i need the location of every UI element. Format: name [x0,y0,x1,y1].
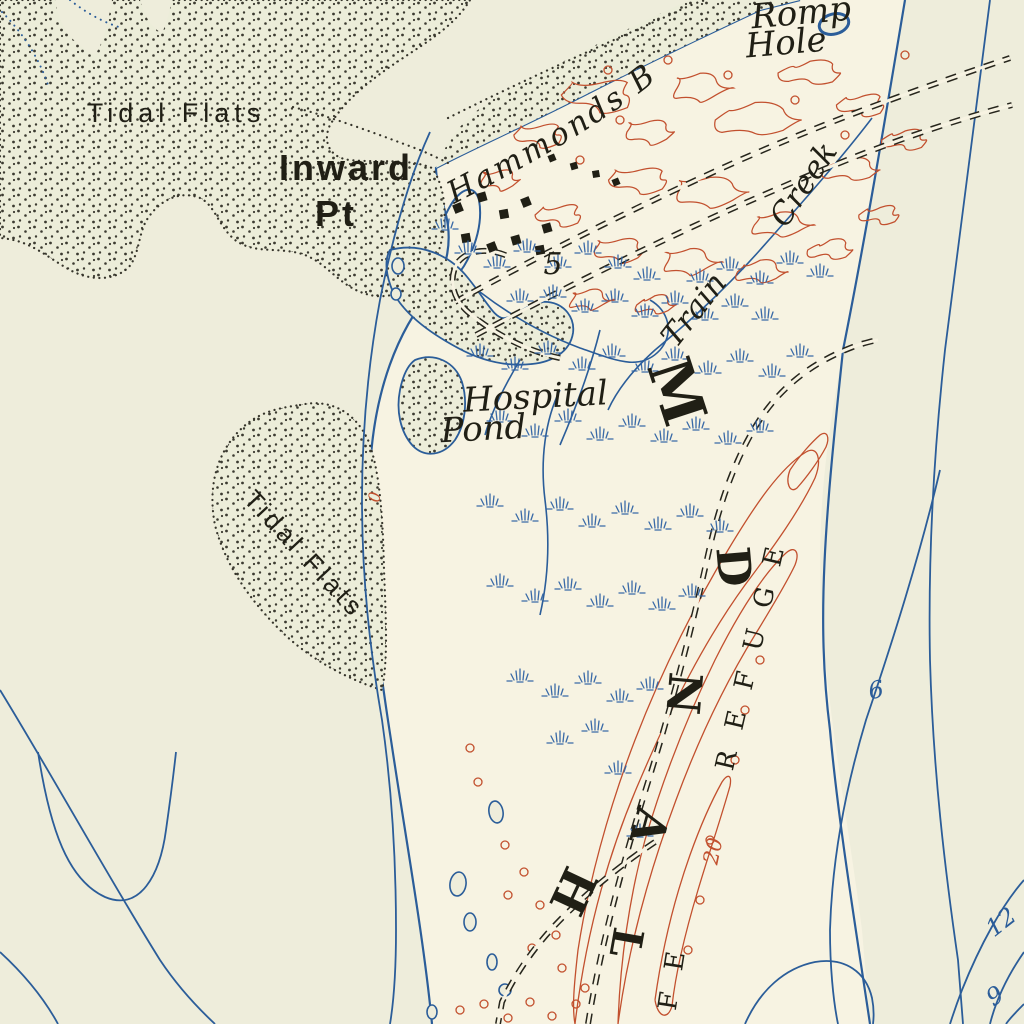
hospital-pond-label-line2: Pond [439,407,528,451]
topo-map: Hammonds B Tidal Flats Tidal Flats Inwar… [0,0,1024,1024]
romp-hole-label-line2: Hole [743,20,828,67]
inward-point-label-line1: Inward [279,147,413,188]
inward-point-label-line2: Pt [315,193,357,234]
map-canvas: Hammonds B Tidal Flats Tidal Flats Inwar… [0,0,1024,1024]
island-letter-n: N [655,670,712,717]
tidal-flats-nw-label: Tidal Flats [87,98,266,128]
sounding-5: 5 [543,247,562,282]
